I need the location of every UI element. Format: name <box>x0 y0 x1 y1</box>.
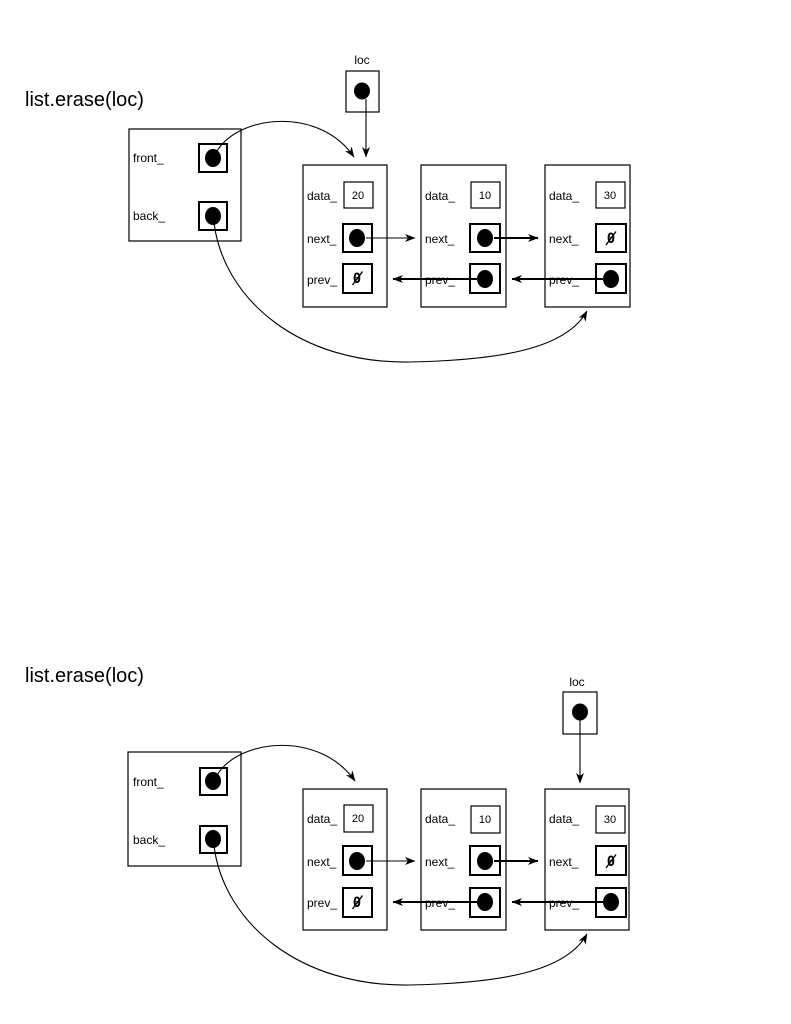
loc-pointer-bullet <box>354 83 370 100</box>
next-label: next_ <box>549 855 579 869</box>
data-value: 20 <box>352 190 364 202</box>
data-value: 30 <box>604 190 616 202</box>
data-label: data_ <box>307 189 337 203</box>
back-pointer-bullet <box>205 207 221 225</box>
node-30: data_ 30 next_ 0 prev_ <box>545 789 629 930</box>
next-pointer-bullet <box>477 229 493 247</box>
next-label: next_ <box>307 855 337 869</box>
front-arrow-curve <box>217 745 355 781</box>
prev-pointer-bullet <box>477 893 493 911</box>
back-pointer-bullet <box>205 830 221 848</box>
next-pointer-bullet <box>349 229 365 247</box>
back-arrow-curve <box>214 223 587 362</box>
front-label: front_ <box>133 775 164 789</box>
data-value: 30 <box>604 814 616 826</box>
data-label: data_ <box>425 812 455 826</box>
node-20: data_ 20 next_ prev_ 0 <box>303 165 387 307</box>
data-value: 20 <box>352 813 364 825</box>
diagram-after-erase: list.erase(loc) loc front_ back_ data_ 2… <box>25 665 629 985</box>
data-value: 10 <box>479 190 491 202</box>
front-arrow-curve <box>217 121 354 157</box>
back-arrow-curve <box>214 846 587 985</box>
data-label: data_ <box>549 189 579 203</box>
next-label: next_ <box>425 232 455 246</box>
list-object-box <box>129 129 241 241</box>
operation-title: list.erase(loc) <box>25 665 144 687</box>
back-label: back_ <box>133 833 165 847</box>
back-label: back_ <box>133 209 165 223</box>
front-pointer-bullet <box>205 772 221 790</box>
operation-title: list.erase(loc) <box>25 89 144 111</box>
next-label: next_ <box>307 232 337 246</box>
loc-label: loc <box>569 675 584 689</box>
prev-label: prev_ <box>307 896 337 910</box>
data-label: data_ <box>425 189 455 203</box>
prev-pointer-bullet <box>603 893 619 911</box>
node-30: data_ 30 next_ 0 prev_ <box>545 165 630 307</box>
node-10: data_ 10 next_ prev_ <box>421 165 506 307</box>
front-pointer-bullet <box>205 149 221 167</box>
linked-list-erase-diagram: list.erase(loc) loc front_ back_ data_ 2… <box>0 0 791 1024</box>
prev-pointer-bullet <box>603 270 619 288</box>
data-value: 10 <box>479 814 491 826</box>
prev-pointer-bullet <box>477 270 493 288</box>
canvas: list.erase(loc) loc front_ back_ data_ 2… <box>0 0 791 1024</box>
node-10: data_ 10 next_ prev_ <box>421 789 506 930</box>
next-pointer-bullet <box>349 852 365 870</box>
data-label: data_ <box>549 812 579 826</box>
next-pointer-bullet <box>477 852 493 870</box>
diagram-before-erase: list.erase(loc) loc front_ back_ data_ 2… <box>25 53 630 362</box>
next-label: next_ <box>425 855 455 869</box>
loc-label: loc <box>354 53 369 67</box>
list-object-box <box>128 752 241 866</box>
front-label: front_ <box>133 151 164 165</box>
data-label: data_ <box>307 812 337 826</box>
loc-pointer: loc <box>346 53 379 157</box>
loc-pointer: loc <box>563 675 597 783</box>
prev-label: prev_ <box>307 273 337 287</box>
next-label: next_ <box>549 232 579 246</box>
node-20: data_ 20 next_ prev_ 0 <box>303 789 387 930</box>
loc-pointer-bullet <box>572 704 588 721</box>
